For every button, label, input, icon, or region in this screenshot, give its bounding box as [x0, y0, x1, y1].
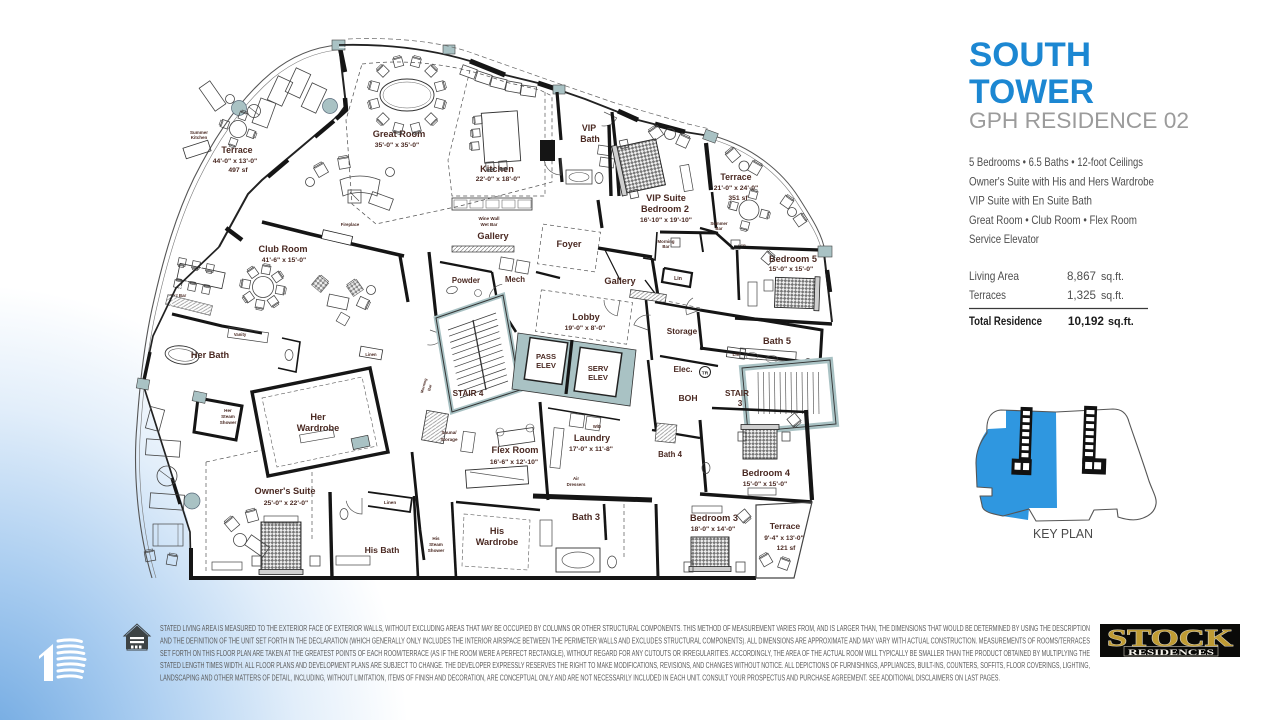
svg-text:Vanity: Vanity: [234, 332, 247, 337]
svg-text:Laundry: Laundry: [574, 433, 611, 443]
svg-text:Storage: Storage: [440, 437, 458, 442]
svg-text:Total Residence: Total Residence: [969, 315, 1042, 328]
svg-text:Owner's Suite with His and Her: Owner's Suite with His and Hers Wardrobe: [969, 175, 1154, 188]
svg-text:Kitchen: Kitchen: [480, 164, 514, 174]
svg-text:8,867: 8,867: [1067, 270, 1096, 283]
svg-text:GPH RESIDENCE 02: GPH RESIDENCE 02: [969, 108, 1189, 133]
svg-text:Bar: Bar: [662, 244, 669, 249]
svg-text:VIP Suite with En Suite Bath: VIP Suite with En Suite Bath: [969, 195, 1092, 208]
svg-text:VIP Suite: VIP Suite: [646, 193, 686, 203]
svg-text:Elec.: Elec.: [673, 365, 692, 374]
svg-text:SET FORTH ON THIS FLOOR PLAN A: SET FORTH ON THIS FLOOR PLAN ARE TAKEN A…: [160, 649, 1090, 658]
svg-text:Dressers: Dressers: [567, 482, 586, 487]
svg-text:ELEV: ELEV: [536, 361, 557, 370]
svg-text:Lobby: Lobby: [572, 312, 600, 322]
svg-text:15'-0" x 15'-0": 15'-0" x 15'-0": [743, 481, 787, 488]
svg-text:W/D: W/D: [593, 424, 601, 429]
svg-text:TOWER: TOWER: [969, 73, 1094, 111]
svg-text:Air: Air: [573, 476, 579, 481]
svg-text:sq.ft.: sq.ft.: [1101, 290, 1124, 302]
svg-text:Her: Her: [310, 412, 326, 422]
svg-text:SERV: SERV: [588, 364, 609, 373]
svg-text:His: His: [490, 526, 504, 536]
svg-text:Mech: Mech: [505, 275, 525, 284]
svg-text:Shower: Shower: [220, 420, 237, 425]
svg-text:18'-0" x 14'-0": 18'-0" x 14'-0": [691, 526, 735, 533]
svg-text:Service Elevator: Service Elevator: [969, 233, 1039, 246]
svg-text:Bedroom 5: Bedroom 5: [769, 254, 817, 264]
svg-text:5 Bedrooms • 6.5 Baths • 12-fo: 5 Bedrooms • 6.5 Baths • 12-foot Ceiling…: [969, 156, 1143, 169]
svg-text:Wet Bar: Wet Bar: [481, 222, 498, 227]
svg-text:Terraces: Terraces: [969, 289, 1006, 302]
svg-text:Storage: Storage: [667, 327, 698, 336]
svg-text:Living Area: Living Area: [969, 270, 1019, 283]
svg-text:22'-0" x 18'-0": 22'-0" x 18'-0": [476, 176, 520, 183]
svg-text:Bath 3: Bath 3: [572, 512, 600, 522]
svg-text:41'-6" x 15'-0": 41'-6" x 15'-0": [262, 257, 306, 264]
svg-text:Steam: Steam: [221, 414, 235, 419]
svg-text:Owner's Suite: Owner's Suite: [255, 486, 316, 496]
svg-text:His Bath: His Bath: [365, 545, 400, 555]
svg-text:STAIR 4: STAIR 4: [453, 389, 484, 398]
svg-text:19'-0" x 8'-0": 19'-0" x 8'-0": [565, 325, 606, 332]
svg-text:9'-4" x 13'-0": 9'-4" x 13'-0": [764, 535, 803, 542]
svg-text:Club Room: Club Room: [259, 244, 308, 254]
svg-text:His: His: [432, 536, 440, 541]
svg-text:Her: Her: [224, 408, 232, 413]
svg-text:TR: TR: [702, 371, 709, 377]
svg-text:Linen: Linen: [384, 500, 396, 505]
svg-text:sq.ft.: sq.ft.: [1108, 316, 1134, 328]
svg-text:Shower: Shower: [428, 548, 445, 553]
svg-text:Linen: Linen: [365, 352, 377, 357]
svg-text:15'-0" x 15'-0": 15'-0" x 15'-0": [769, 266, 813, 273]
svg-text:Bath 4: Bath 4: [658, 450, 682, 459]
svg-text:35'-0" x 35'-0": 35'-0" x 35'-0": [375, 142, 419, 149]
svg-text:RESIDENCES: RESIDENCES: [1128, 647, 1214, 657]
svg-text:Bar: Bar: [715, 226, 722, 231]
svg-text:Powder: Powder: [452, 276, 480, 285]
svg-text:STATED LENGTH TIMES WIDTH. ALL: STATED LENGTH TIMES WIDTH. ALL FLOOR PLA…: [160, 661, 1090, 670]
svg-text:STAIR: STAIR: [725, 389, 749, 398]
svg-text:16'-6" x 12'-10": 16'-6" x 12'-10": [490, 459, 538, 466]
svg-text:Wine Wall: Wine Wall: [478, 216, 499, 221]
svg-text:Bedroom 3: Bedroom 3: [690, 513, 738, 523]
svg-text:STATED LIVING AREA IS MEASURED: STATED LIVING AREA IS MEASURED TO THE EX…: [160, 624, 1090, 633]
svg-text:SOUTH: SOUTH: [969, 36, 1091, 74]
svg-text:KEY PLAN: KEY PLAN: [1033, 527, 1093, 541]
svg-text:Kitchen: Kitchen: [191, 135, 208, 140]
svg-text:Sauna/: Sauna/: [441, 430, 457, 435]
svg-text:sq.ft.: sq.ft.: [1101, 271, 1124, 283]
svg-text:Bedroom 2: Bedroom 2: [641, 204, 689, 214]
svg-text:44'-0" x 13'-0": 44'-0" x 13'-0": [213, 158, 257, 165]
svg-text:3: 3: [738, 399, 743, 408]
svg-text:VIP: VIP: [582, 123, 596, 133]
svg-text:Lin: Lin: [674, 276, 682, 282]
svg-text:Terrace: Terrace: [720, 172, 751, 182]
svg-text:Flex Room: Flex Room: [492, 445, 539, 455]
svg-text:Bath 5: Bath 5: [763, 336, 791, 346]
svg-text:1,325: 1,325: [1067, 289, 1096, 302]
svg-text:Great Room • Club Room • Flex: Great Room • Club Room • Flex Room: [969, 214, 1137, 227]
svg-text:Lin: Lin: [733, 352, 740, 357]
svg-text:AND THE DEFINITION OF THE UNIT: AND THE DEFINITION OF THE UNIT SET FORTH…: [160, 636, 1090, 645]
svg-text:PASS: PASS: [536, 352, 556, 361]
svg-text:Wardrobe: Wardrobe: [476, 537, 519, 547]
svg-text:Terrace: Terrace: [770, 521, 801, 531]
svg-text:Gallery: Gallery: [477, 231, 509, 241]
svg-text:17'-0" x 11'-8": 17'-0" x 11'-8": [569, 446, 613, 453]
svg-text:ELEV: ELEV: [588, 373, 609, 382]
svg-text:Fireplace: Fireplace: [341, 222, 360, 227]
svg-text:121 sf: 121 sf: [777, 545, 797, 552]
svg-text:497 sf: 497 sf: [228, 167, 248, 174]
svg-text:Bedroom 4: Bedroom 4: [742, 468, 791, 478]
svg-text:Foyer: Foyer: [556, 239, 581, 249]
svg-text:LANDSCAPING AND OTHER MATTERS: LANDSCAPING AND OTHER MATTERS OF DETAIL,…: [160, 674, 1000, 683]
svg-text:25'-0" x 22'-0": 25'-0" x 22'-0": [264, 500, 308, 507]
svg-text:10,192: 10,192: [1068, 314, 1105, 328]
svg-text:Steam: Steam: [429, 542, 443, 547]
svg-text:Terrace: Terrace: [221, 145, 252, 155]
svg-text:16'-10" x 19'-10": 16'-10" x 19'-10": [640, 217, 692, 224]
svg-text:Gallery: Gallery: [604, 276, 636, 286]
svg-text:Bath: Bath: [580, 134, 600, 144]
svg-text:BOH: BOH: [678, 393, 697, 403]
